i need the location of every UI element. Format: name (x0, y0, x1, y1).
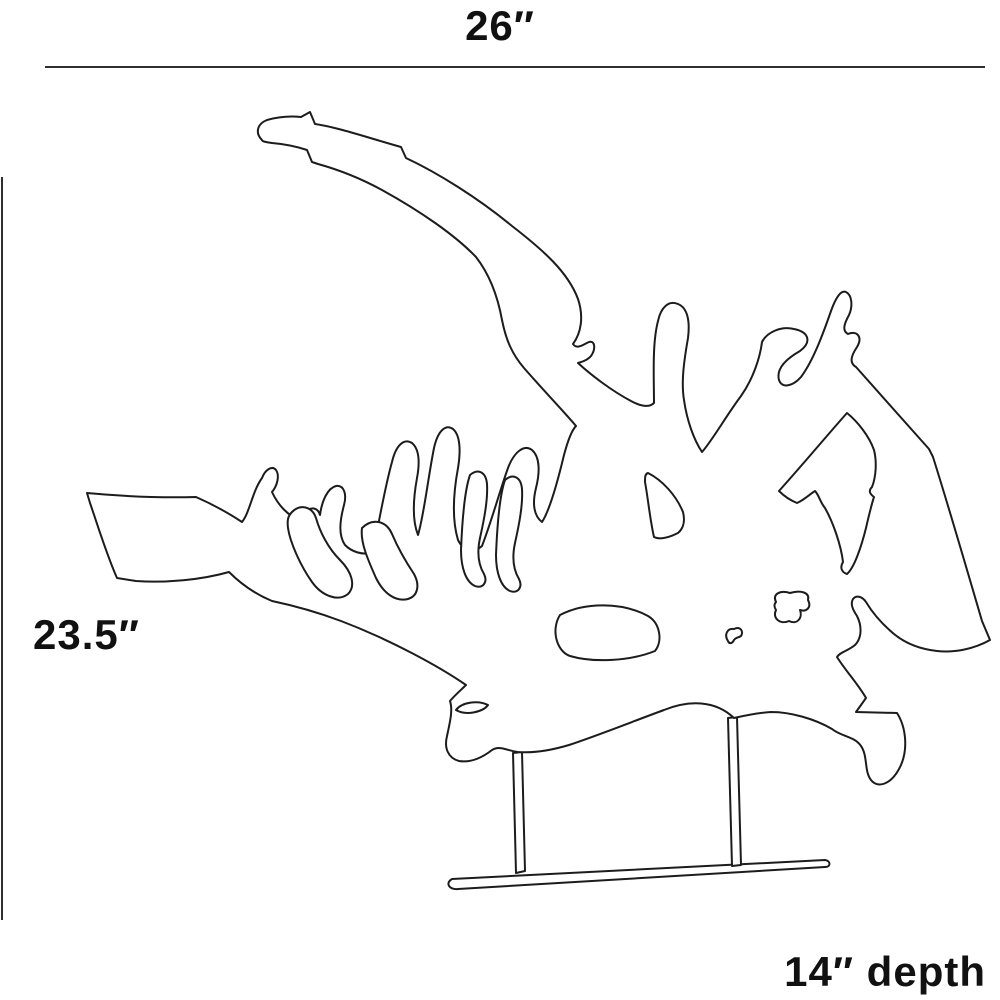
sculpture-drawing (0, 0, 1000, 1000)
hole-bottom-center (555, 605, 659, 660)
stand-leg-right (728, 717, 741, 866)
dimension-diagram: 26″ 23.5″ 14″ depth (0, 0, 1000, 1000)
stand-leg-left (513, 752, 525, 873)
stand-base (448, 860, 829, 889)
